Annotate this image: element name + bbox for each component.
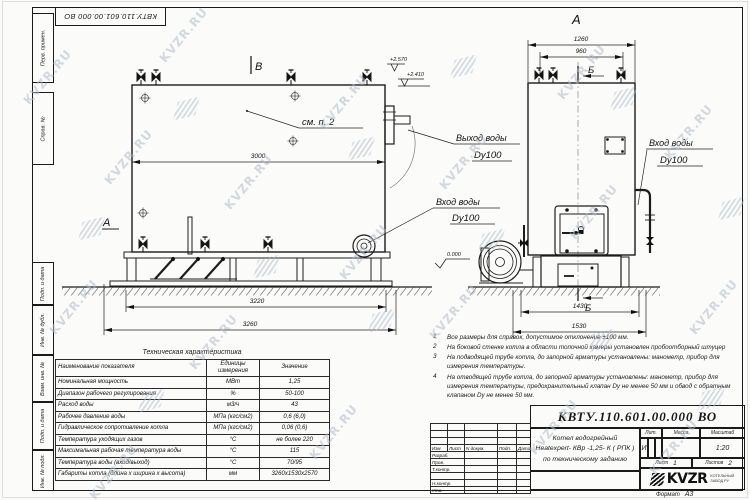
water-inlet-right-label: Вход воды [649,138,693,148]
empty-cell [530,471,640,490]
right-view-boiler-front [468,62,660,296]
top-valve-icon [617,68,625,83]
dim-1530: 1530 [572,323,587,330]
elevation-2410: +2.410 [407,72,425,78]
note-item: 2На боковой стенке котла в области топоч… [433,343,742,352]
elevation-2570: +2.570 [390,57,408,63]
margin-cell-perv-primen: Перв. примен. [32,13,54,83]
water-inlet-dn: Dy100 [452,213,480,224]
tech-table: Наименование показателя Единицы измерени… [55,359,330,481]
water-inlet-right-dn: Dy100 [660,155,688,166]
sign-utv: Утв. [431,487,465,494]
title-designation: КВТУ.110.601.00.000 ВО [530,405,745,428]
tech-table-title: Техническая характеристика [55,349,329,356]
top-valve-icon [535,68,543,83]
outlet-pipe [383,106,415,188]
dim-3260: 3260 [243,321,258,328]
rev-hdr-data: Дата [517,445,531,452]
note-item: 1Все размеры для справок, допустимое отк… [433,333,742,342]
water-outlet-dn: Dy100 [474,150,502,161]
section-b-label: В [255,61,262,73]
margin-cell-podp-data-1: Подп. и дата [32,262,54,305]
kvzr-logo-subtext: КОТЕЛЬНЫЙ ЗАВОД РУ [710,474,734,484]
furnace-door [555,206,608,255]
sheets-cell: Листов 2 [692,458,745,468]
water-outlet-label: Выход воды [456,133,507,143]
rev-hdr-list: Лист [448,445,465,452]
right-side-pipe [635,190,655,253]
dim-1260: 1260 [574,36,589,43]
tech-row: Температура уходящих газов°Сне более 220 [56,434,330,446]
tech-col-value: Значение [260,360,330,377]
lit-value: И [640,438,648,458]
position-mark-icon [138,208,149,219]
scale-label: Масштаб [700,428,745,438]
marker-b-top: Б [588,65,594,76]
sign-empty [431,473,465,480]
sign-razrab: Разраб. [431,452,465,459]
elevation-0000: 0.000 [447,252,462,258]
drain-valve-icon [264,237,272,252]
view-a-label: А [571,12,581,27]
grate-drive-levers [150,257,237,279]
drain-valve-icon [201,237,209,252]
water-inlet-label: Вход воды [436,197,480,207]
margin-cell-vzam-inv: Взам. инв. № [32,355,54,402]
drawing-canvas: 3000 3220 3260 А В см. п. 2 +2.570 +2.41… [56,9,745,339]
left-side-pipe [518,225,528,257]
tech-row: Температура воды (вход/выход)°С70/95 [56,457,330,469]
tech-row: Рабочее давление водыМПа (кгс/см2)0,6 (6… [56,411,330,423]
top-valve-icon [152,70,160,85]
sign-nkontr: Н.контр. [431,480,465,487]
margin-cell-sprav-no: Справ. № [32,92,54,165]
dim-960: 960 [576,48,587,55]
scale-value: 1:20 [700,438,745,458]
position-mark-icon [288,136,299,147]
note-item: 3На подводящей трубе котла, до запорной … [433,353,742,371]
note-item: 4На отводящей трубе котла, до запорной а… [433,373,742,400]
tech-row: Гидравлическое сопротивление котлаМПа (к… [56,423,330,435]
lit-cell-2 [648,438,655,458]
top-valve-icon [287,70,295,85]
notes-list: 1Все размеры для справок, допустимое отк… [433,333,742,401]
top-valve-icon [137,70,145,85]
rev-hdr-izm: Изм [431,445,448,452]
position-mark-icon [290,91,301,102]
kvzr-logo-icon [649,473,665,486]
dim-3000: 3000 [251,153,266,160]
margin-cell-inv-podl: Инв. № подл. [32,450,54,491]
rev-hdr-podp: Подп. [498,445,517,452]
dim-3220: 3220 [250,298,265,305]
tech-row: Номинальная мощностьМВт1,25 [56,377,330,389]
sheet-cell: Лист 1 [640,458,692,468]
marker-b-bottom: Б [585,303,591,314]
margin-cell-podp-data-2: Подп. и дата [32,402,54,450]
rev-hdr-ndoc: N докум. [465,445,498,452]
tech-row: Диапазон рабочего регулирования%50-100 [56,388,330,400]
tech-row: Расход водым3/ч43 [56,400,330,412]
drawing-sheet: КВТУ.110.601.00.000 ВО Перв. примен. Спр… [0,0,750,500]
tech-col-units: Единицы измерения [207,360,260,377]
sign-tkontr: Т.контр. [431,466,465,473]
mass-value [662,438,700,458]
position-mark-icon [140,93,151,104]
top-valve-icon [549,68,557,83]
tech-col-name: Наименование показателя [56,360,207,377]
company-cell: KVZR КОТЕЛЬНЫЙ ЗАВОД РУ [640,468,745,490]
left-view-boiler-side [62,70,432,296]
mass-label: Масса [662,428,700,438]
lit-cell-3 [655,438,662,458]
boiler-base [533,256,629,287]
document-name: Котел водогрейный Heatexpert- КВр -1,25-… [530,428,640,471]
format-label: Формат А3 [656,491,693,498]
see-note-label: см. п. 2 [302,117,335,128]
tech-row: Максимальная рабочая температура воды°С1… [56,446,330,458]
drain-valve-icon [139,237,147,252]
tech-characteristics: Техническая характеристика Наименование … [55,349,329,481]
section-a-label: А [102,217,110,229]
title-block-signature-grid: Изм Лист N докум. Подп. Дата Разраб. Про… [430,423,531,494]
tech-row: Габариты котла (длина х ширина х высота)… [56,469,330,481]
kvzr-logo-text: KVZR [667,471,708,487]
margin-cell-inv-dubl: Инв. № дубл. [32,305,54,355]
inlet-flange [353,235,375,257]
sign-prov: Пров. [431,459,465,466]
top-valve-icon [363,70,371,85]
lit-label: Лит. [640,428,662,438]
